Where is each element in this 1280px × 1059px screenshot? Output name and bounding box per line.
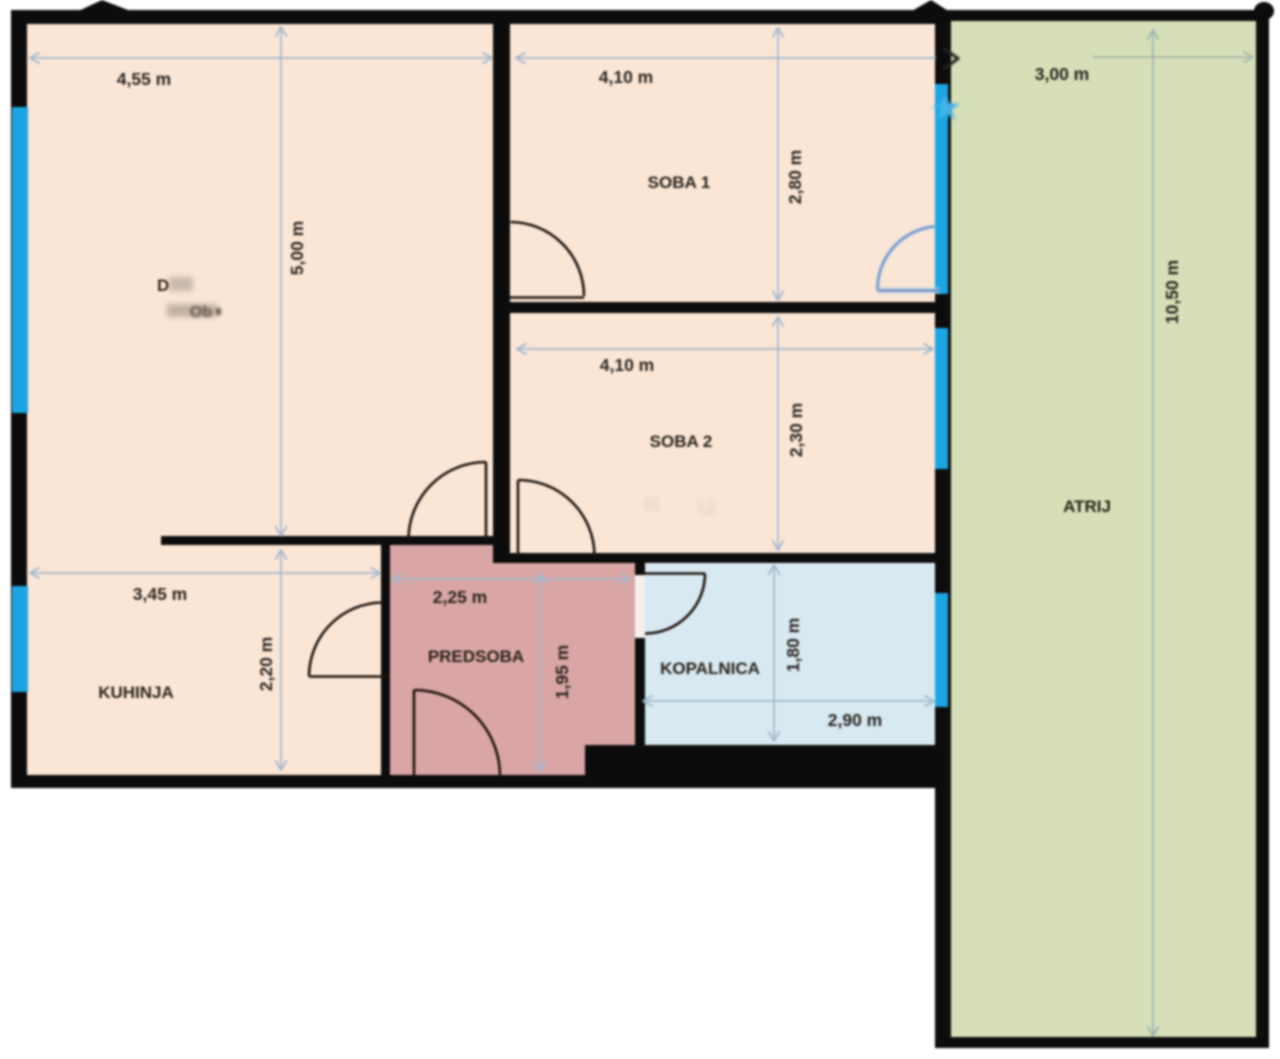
svg-text:2,30 m: 2,30 m	[786, 403, 806, 457]
svg-text:4,10 m: 4,10 m	[599, 67, 653, 87]
svg-text:5,00 m: 5,00 m	[287, 221, 307, 275]
svg-text:H: H	[643, 492, 659, 517]
svg-text:1,95 m: 1,95 m	[552, 645, 572, 699]
svg-text:KOPALNICA: KOPALNICA	[660, 659, 760, 678]
svg-text:Ob: Ob	[190, 304, 212, 321]
svg-text:KUHINJA: KUHINJA	[98, 683, 174, 702]
svg-text:2,90 m: 2,90 m	[828, 710, 882, 730]
svg-text:3,45 m: 3,45 m	[133, 584, 187, 604]
svg-text:2,25 m: 2,25 m	[433, 587, 487, 607]
svg-text:10,50 m: 10,50 m	[1162, 260, 1182, 324]
svg-text:SOBA 2: SOBA 2	[650, 432, 713, 451]
svg-text:4,55 m: 4,55 m	[117, 69, 171, 89]
svg-text:IJ: IJ	[698, 495, 716, 520]
svg-text:SOBA 1: SOBA 1	[648, 173, 711, 192]
svg-text:2,80 m: 2,80 m	[785, 150, 805, 204]
svg-text:D: D	[157, 276, 169, 295]
svg-text:1,80 m: 1,80 m	[783, 618, 803, 672]
svg-text:2,20 m: 2,20 m	[256, 637, 276, 691]
svg-text:PREDSOBA: PREDSOBA	[428, 647, 524, 666]
svg-text:3,00 m: 3,00 m	[1035, 64, 1089, 84]
svg-text:ATRIJ: ATRIJ	[1063, 497, 1111, 516]
svg-text:4,10 m: 4,10 m	[600, 355, 654, 375]
